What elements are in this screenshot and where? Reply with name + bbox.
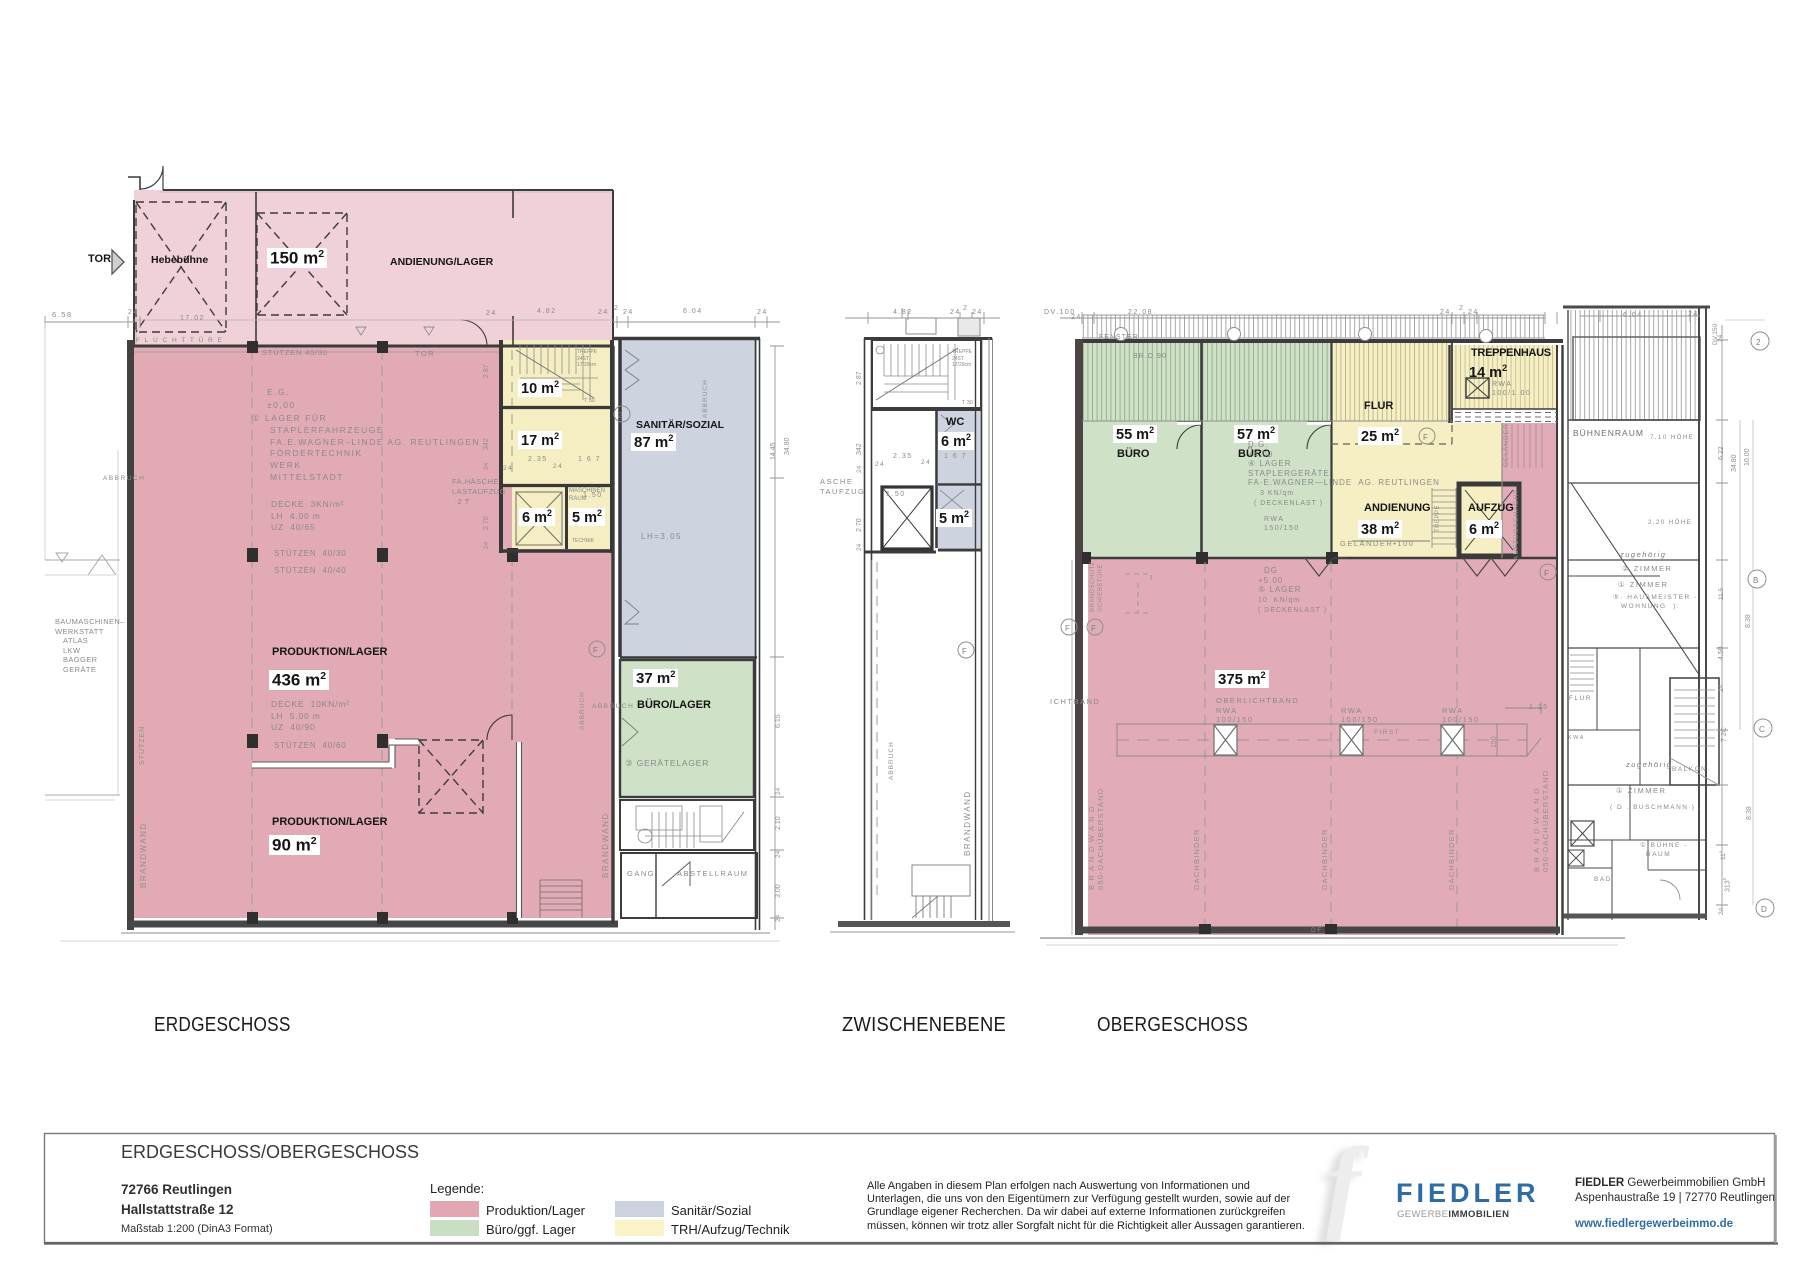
svg-text:f: f — [1326, 1127, 1370, 1242]
